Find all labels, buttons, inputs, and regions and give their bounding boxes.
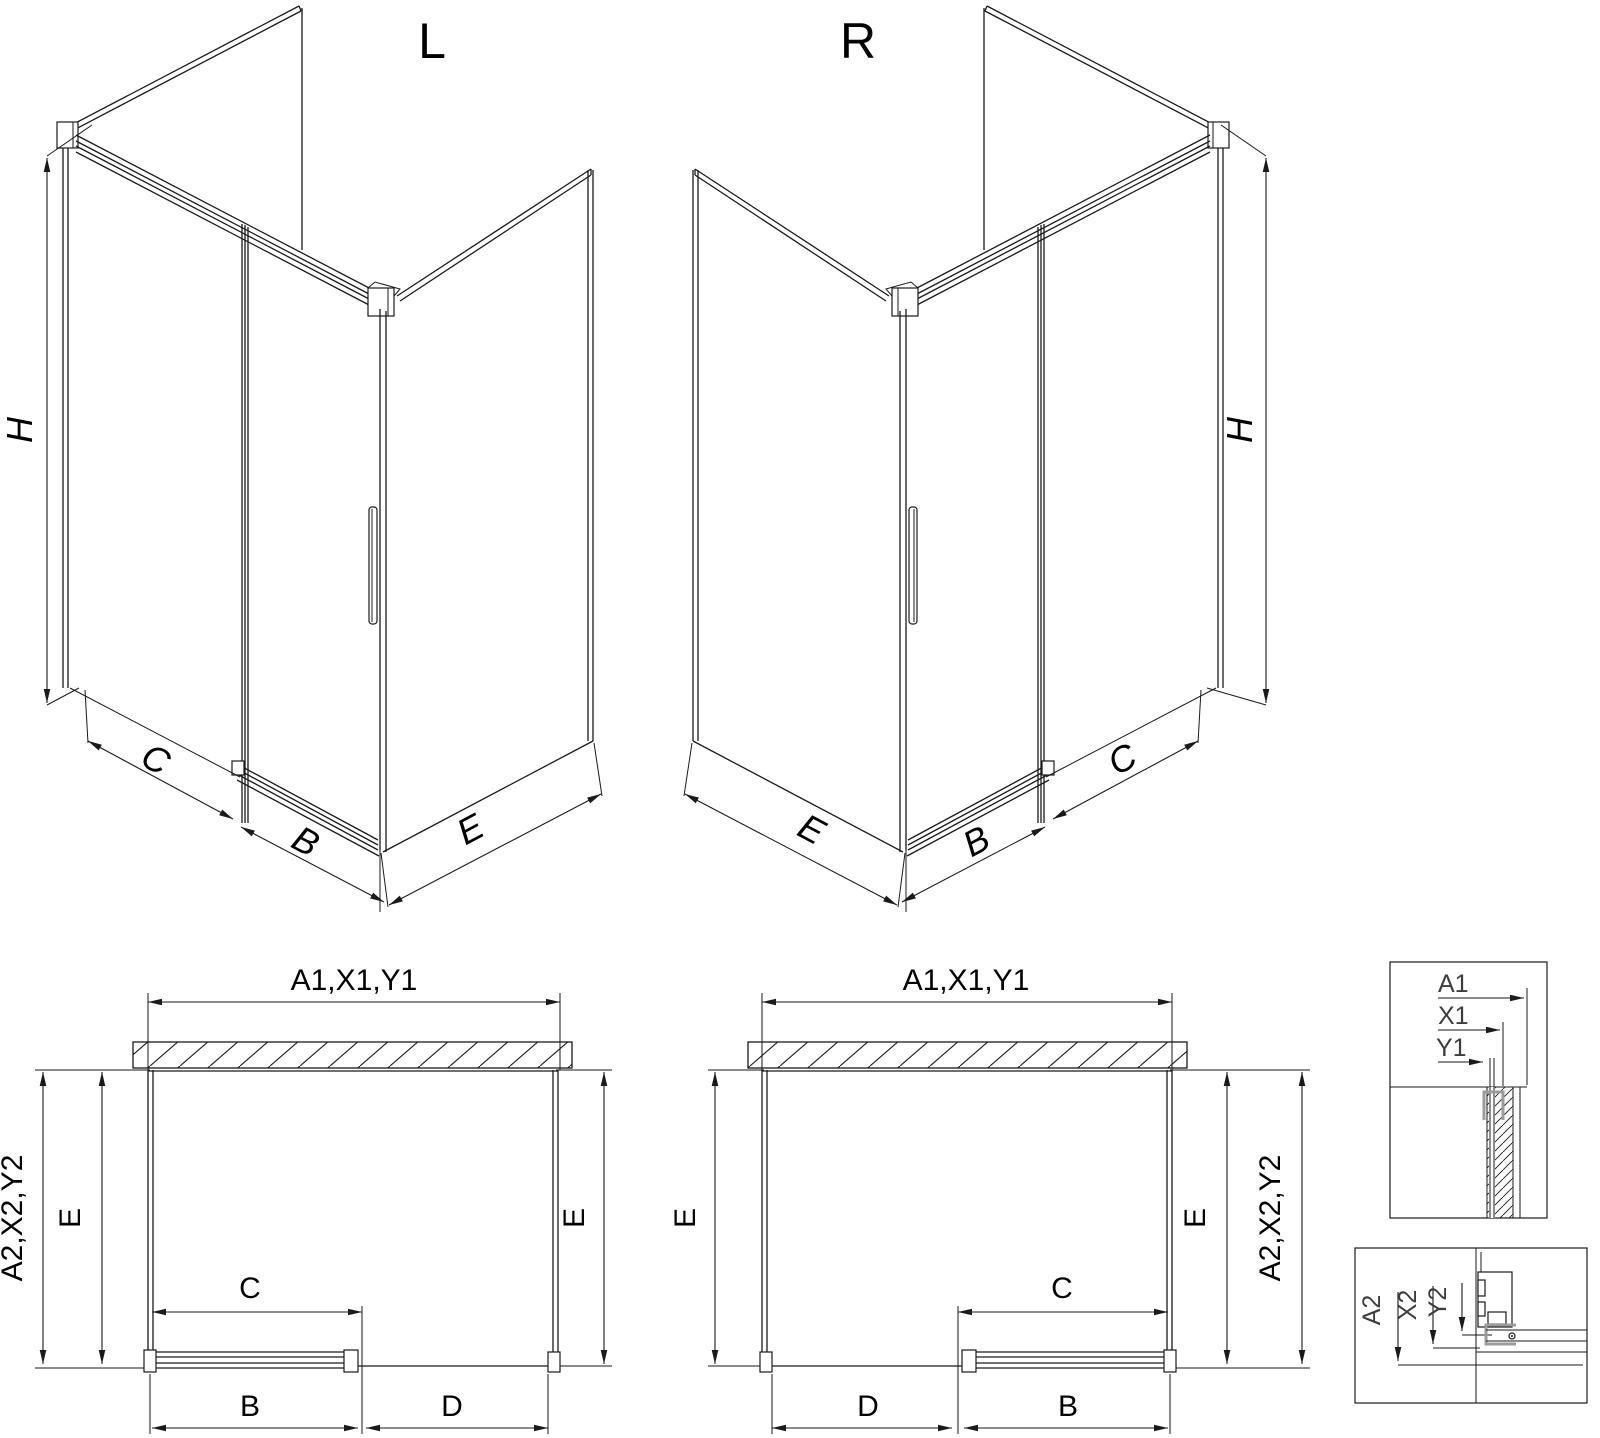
plan-right-wall <box>748 1042 1187 1068</box>
left-door-stile <box>242 224 248 823</box>
detail-bottom-bracket-notch-1 <box>1478 1280 1485 1296</box>
detail-top-label-a1: A1 <box>1438 970 1469 998</box>
plan-left-corner-profile <box>548 1352 560 1372</box>
dim-label-h-right: H <box>1219 416 1260 443</box>
left-corner-connector <box>368 288 394 316</box>
plan-left-glass-walls <box>148 1070 558 1368</box>
plan-left-track-end-right <box>344 1350 358 1372</box>
plan-left-label-a1: A1,X1,Y1 <box>291 964 418 997</box>
right-bottom-track-stop <box>1042 761 1054 775</box>
dim-ext-h-left <box>47 125 92 705</box>
plan-left-label-c: C <box>239 1272 261 1305</box>
plan-left-door-track <box>150 1352 352 1368</box>
plan-right-door-track <box>968 1352 1170 1368</box>
dim-label-e-left: E <box>450 805 491 853</box>
plan-view-left: A1,X1,Y1 A2,X2,Y2 E E C B D <box>0 964 612 1434</box>
plan-left-track-end-left <box>144 1350 156 1372</box>
plan-right-label-d: D <box>857 1390 879 1423</box>
plan-right-label-e2: E <box>1179 1208 1212 1228</box>
plan-left-wall <box>133 1042 572 1068</box>
plan-right-label-b: B <box>1058 1390 1078 1423</box>
detail-bottom-label-y2: Y2 <box>1424 1287 1452 1318</box>
left-wall-profile-clamp <box>57 122 78 148</box>
plan-left-label-b: B <box>240 1390 260 1423</box>
right-corner-connector <box>892 288 918 316</box>
plan-left-label-e1: E <box>54 1208 87 1228</box>
plan-left-dim-bd-ext <box>150 1374 548 1434</box>
plan-right-glass-walls <box>762 1070 1172 1368</box>
plan-right-track-end-left <box>962 1350 976 1372</box>
plan-left-label-d: D <box>441 1390 463 1423</box>
plan-right-track-end-right <box>1164 1350 1176 1372</box>
detail-top-frame <box>1390 962 1547 1218</box>
plan-right-label-a1: A1,X1,Y1 <box>903 964 1030 997</box>
iso-view-right: R H C B E <box>684 6 1266 912</box>
dim-label-b-left: B <box>286 817 326 864</box>
plan-view-right: A1,X1,Y1 E E A2,X2,Y2 C D B <box>669 964 1310 1434</box>
dim-line-e-left <box>389 794 601 905</box>
plan-right-label-c: C <box>1051 1272 1073 1305</box>
dim-label-c-right: C <box>1101 734 1144 783</box>
right-wall-profile-clamp <box>1208 122 1229 148</box>
dim-line-e-right <box>685 794 897 905</box>
view-label-right: R <box>840 13 876 69</box>
plan-left-label-e2: E <box>558 1208 591 1228</box>
plan-right-label-e1: E <box>669 1208 702 1228</box>
technical-drawing-canvas: L H C B E R H C B E <box>0 0 1600 1438</box>
detail-bottom-frame <box>1355 1248 1587 1403</box>
dim-label-h-left: H <box>0 416 40 443</box>
dim-ext-e-left <box>381 743 602 907</box>
right-back-panel-glass <box>984 6 1223 688</box>
dim-label-c-left: C <box>135 735 178 784</box>
dim-ext-c-right <box>1198 690 1201 743</box>
plan-left-label-a2: A2,X2,Y2 <box>0 1155 29 1282</box>
right-side-panel-glass <box>693 169 903 852</box>
detail-bottom-roller-axle <box>1511 1335 1513 1337</box>
detail-top-label-y1: Y1 <box>1436 1034 1467 1062</box>
right-door-stile <box>1038 224 1044 823</box>
left-bottom-track-stop <box>232 761 244 775</box>
plan-right-dim-bd-ext <box>772 1374 1170 1434</box>
dim-label-b-right: B <box>956 817 996 864</box>
view-label-left: L <box>418 13 446 69</box>
plan-right-ext-lines <box>708 1070 1310 1368</box>
detail-wall-profile: A1 X1 Y1 <box>1390 962 1547 1218</box>
left-top-rail <box>76 135 371 306</box>
detail-bottom-label-a2: A2 <box>1358 1295 1386 1326</box>
detail-top-label-x1: X1 <box>1438 1002 1469 1030</box>
dim-ext-e-right <box>684 743 905 907</box>
plan-left-ext-lines <box>35 1070 612 1368</box>
detail-bottom-label-x2: X2 <box>1394 1290 1422 1321</box>
dim-ext-c-left <box>85 690 88 743</box>
left-door-handle <box>369 507 377 624</box>
drawing-sheet: L H C B E R H C B E <box>0 0 1600 1438</box>
plan-right-corner-profile <box>760 1352 772 1372</box>
left-side-panel-glass <box>383 169 593 852</box>
detail-floor-rail: A2 X2 Y2 <box>1355 1248 1587 1403</box>
left-back-panel-glass <box>63 6 302 688</box>
iso-view-left: L H C B E <box>0 6 602 912</box>
detail-bottom-bracket-inner <box>1488 1312 1506 1324</box>
plan-right-label-a2: A2,X2,Y2 <box>1254 1155 1287 1282</box>
right-door-handle <box>909 507 917 624</box>
dim-ext-h-right <box>1207 125 1266 705</box>
right-top-rail <box>915 135 1210 306</box>
detail-bottom-bracket-notch-2 <box>1478 1302 1485 1316</box>
